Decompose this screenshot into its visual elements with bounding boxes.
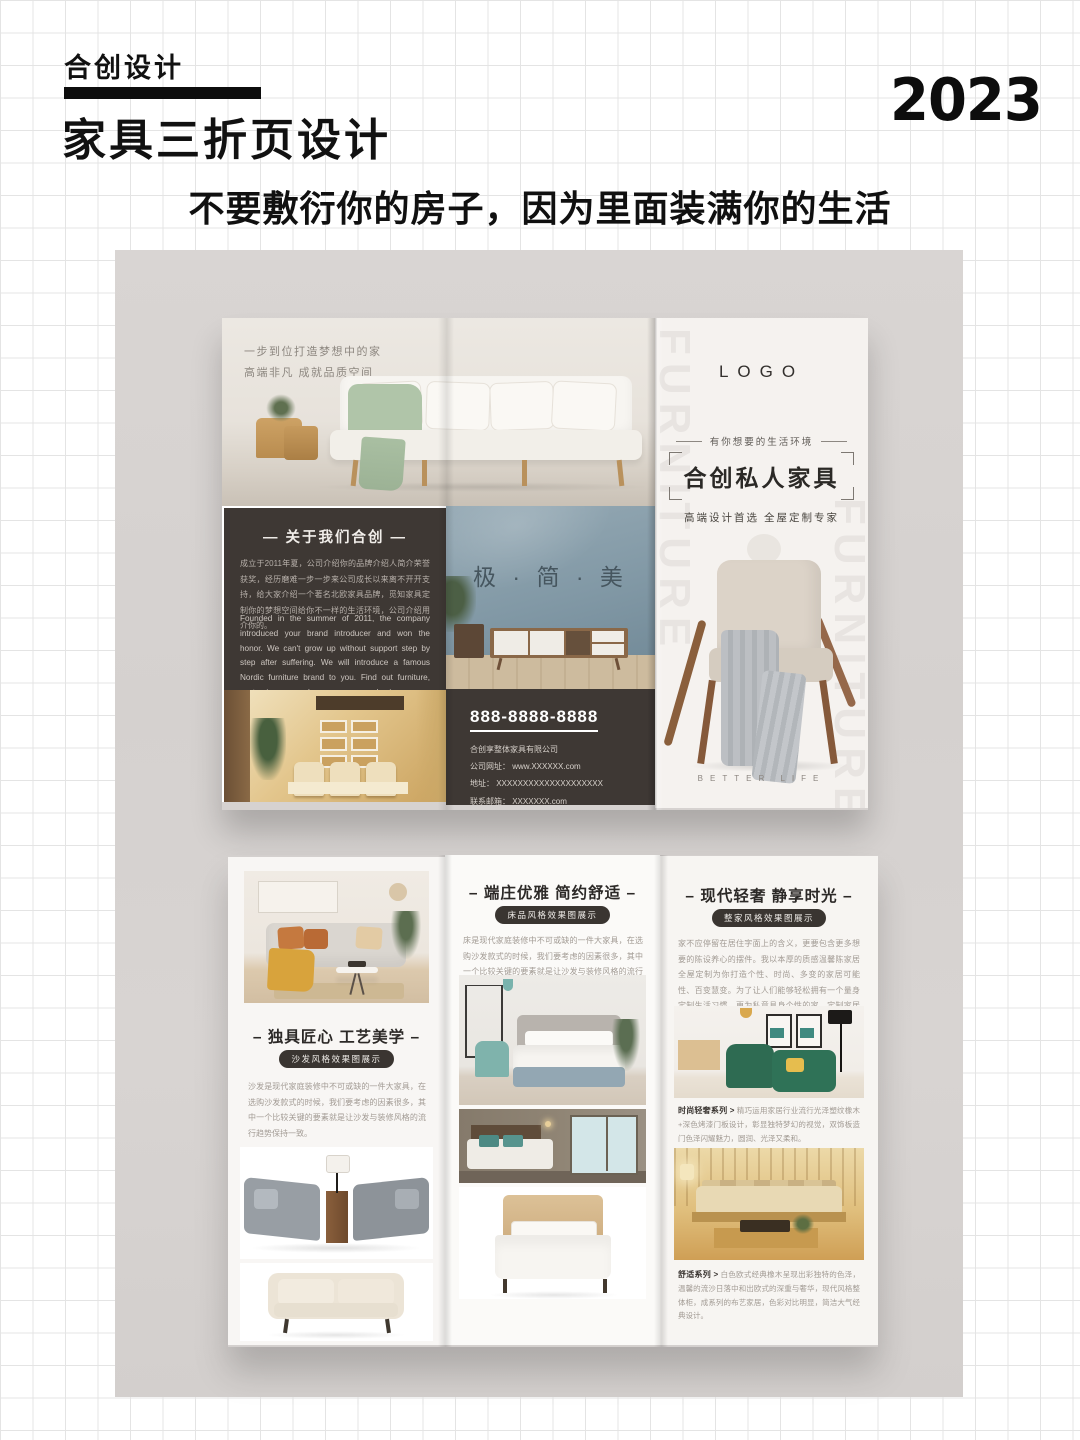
armchair-photo [673, 556, 853, 768]
sofa-pillow [395, 1189, 419, 1209]
round-coffee-table [336, 967, 378, 973]
teal-artwork [770, 1028, 784, 1038]
plant [792, 1214, 814, 1234]
chair-leg [697, 680, 716, 764]
gray-sofas-product-photo [240, 1147, 433, 1259]
better-life-label: BETTER LIFE [655, 774, 868, 783]
warm-lamp [680, 1164, 694, 1180]
right-section-heading: – 现代轻奢 静享时光 – [660, 884, 878, 906]
cabinet-door [530, 631, 564, 655]
company-email: 联系邮箱： XXXXXXX.com [470, 793, 603, 805]
back-left-panel: – 独具匠心 工艺美学 – 沙发风格效果图展示 沙发是现代家庭装修中不可或缺的一… [228, 857, 445, 1345]
dining-wall-panel [316, 696, 404, 710]
mustard-throw [267, 948, 315, 992]
page-title: 家具三折页设计 [62, 104, 391, 168]
cabinet-open-shelf [566, 631, 590, 655]
living-room-photo [244, 871, 429, 1003]
bed-duvet [495, 1235, 611, 1279]
middle-badge-row: 床品风格效果图展示 [445, 906, 660, 924]
teal-pillow [479, 1135, 499, 1147]
wood-floor [446, 655, 655, 689]
minimal-slogan: 极 · 简 · 美 [446, 558, 655, 592]
left-section-badge: 沙发风格效果图展示 [279, 1050, 393, 1068]
series-caption-2-label: 舒适系列 > [678, 1270, 718, 1279]
phone-number: 888-8888-8888 [470, 707, 598, 732]
cover-title: 合创私人家具 [671, 454, 852, 498]
wall-lamp-glow [545, 1121, 551, 1127]
cover-logo: LOGO [655, 362, 868, 382]
loveseat-cushion [278, 1279, 334, 1305]
loveseat-seat [274, 1303, 398, 1317]
product-shadow [250, 1243, 422, 1253]
wood-side-table-small [284, 426, 318, 460]
rust-pillow [277, 926, 304, 950]
minimal-style-photo: 极 · 简 · 美 [446, 506, 655, 689]
brochure-front: — 关于我们合创 — 成立于2011年夏，公司介绍你的品牌介绍人简介荣誉获奖，经… [222, 318, 868, 810]
hero-sofa-photo: 一步到位打造梦想中的家 高端非凡 成就品质空间 [222, 318, 655, 506]
brand-logo-text: 合创设计 [64, 46, 184, 85]
year-label: 2023 [890, 66, 1042, 134]
floor-lamp-shade [828, 1010, 852, 1024]
green-sofa-room-photo [674, 1006, 864, 1098]
back-middle-panel: – 端庄优雅 简约舒适 – 床品风格效果图展示 床是现代家庭装修中不可或缺的一件… [445, 855, 660, 1345]
sofa-leg [422, 460, 427, 486]
table-plant [266, 394, 296, 422]
bed-product-photo [459, 1187, 646, 1299]
middle-section-heading: – 端庄优雅 简约舒适 – [445, 881, 660, 903]
dining-plant [250, 718, 286, 780]
gray-sofa-right [353, 1177, 429, 1241]
sofa-pillow [425, 381, 491, 431]
fold-shadow [654, 855, 668, 1347]
dining-room-photo [224, 690, 446, 802]
plant [391, 911, 421, 959]
plant [612, 1019, 640, 1071]
tv-cabinet [490, 628, 628, 658]
yellow-pillow [786, 1058, 804, 1072]
dark-bedroom-photo [459, 1109, 646, 1183]
green-armchair [726, 1044, 774, 1088]
floor-lamp-stem [840, 1016, 842, 1072]
gray-sofa-left [244, 1177, 320, 1241]
dining-picture-frames [320, 720, 378, 768]
hero-intro-line1: 一步到位打造梦想中的家 [244, 342, 382, 363]
blue-gray-throw [513, 1067, 625, 1087]
dining-wood-column [224, 690, 250, 802]
sofa-pillow [551, 380, 617, 431]
teal-accent-chair [475, 1041, 509, 1077]
series-caption-1-label: 时尚轻奢系列 > [678, 1106, 734, 1115]
cream-pillow [355, 926, 382, 950]
about-heading: — 关于我们合创 — [224, 526, 446, 547]
front-cover-panel: FURNITURE FURNITURE LOGO 有你想要的生活环境 合创私人家… [655, 318, 868, 808]
bedroom-photo [459, 975, 646, 1105]
loveseat-leg [385, 1319, 391, 1333]
green-throw-drape [358, 437, 406, 492]
left-badge-row: 沙发风格效果图展示 [228, 1050, 445, 1068]
cover-title-brackets: 合创私人家具 [671, 454, 852, 498]
chair-leg [819, 680, 838, 764]
company-address: 地址： XXXXXXXXXXXXXXXXXXXX [470, 775, 603, 792]
teal-pillow [503, 1135, 523, 1147]
left-section-heading: – 独具匠心 工艺美学 – [228, 1025, 445, 1047]
back-right-panel: – 现代轻奢 静享时光 – 整家风格效果图展示 家不应停留在居住字面上的含义，更… [660, 856, 878, 1345]
emerald-sofa [772, 1050, 836, 1092]
product-shadow [489, 1291, 619, 1299]
contact-details: 合创享整体家具有限公司 公司网址： www.XXXXXX.com 地址： XXX… [470, 741, 603, 805]
wood-pedestal [326, 1191, 348, 1243]
left-section-body: 沙发是现代家庭装修中不可或缺的一件大家具，在选购沙发款式的时候，我们要考虑的因素… [248, 1079, 426, 1141]
series-caption-2: 舒适系列 > 白色欧式经典橡木呈现出彩独特的色泽，温馨的流沙日落中和出欧式的深重… [678, 1268, 860, 1323]
cabinet-drawer [592, 644, 624, 655]
dining-light-edge [416, 690, 446, 802]
sofa-pillow [489, 381, 555, 431]
brand-underline-bar [64, 87, 261, 99]
bed-leg [603, 1279, 607, 1293]
small-side-cabinet [454, 624, 484, 658]
right-badge-row: 整家风格效果图展示 [660, 909, 878, 927]
table-lamp-shade [326, 1155, 350, 1173]
sofa-leg [522, 460, 527, 486]
cabinet-drawer [592, 631, 624, 642]
page-subtitle: 不要敷衍你的房子，因为里面装满你的生活 [0, 180, 1080, 232]
company-website: 公司网址： www.XXXXXX.com [470, 758, 603, 775]
wall-decor-circle [389, 883, 407, 901]
middle-section-badge: 床品风格效果图展示 [495, 906, 609, 924]
fold-shadow [438, 855, 452, 1347]
brochure-back: – 独具匠心 工艺美学 – 沙发风格效果图展示 沙发是现代家庭装修中不可或缺的一… [228, 855, 878, 1347]
wood-console [678, 1040, 720, 1070]
sofa-pillow [254, 1189, 278, 1209]
about-block: — 关于我们合创 — 成立于2011年夏，公司介绍你的品牌介绍人简介荣誉获奖，经… [224, 508, 446, 690]
loveseat-cushion [338, 1279, 394, 1305]
wall-art-frame [258, 881, 338, 913]
company-name: 合创享整体家具有限公司 [470, 741, 603, 758]
series-caption-1: 时尚轻奢系列 > 精巧运用家居行业流行光泽塑纹橡木+深色烤漆门板设计，彰显独特梦… [678, 1104, 860, 1145]
window [570, 1115, 638, 1175]
right-section-badge: 整家风格效果图展示 [712, 909, 826, 927]
contact-block: 888-8888-8888 合创享整体家具有限公司 公司网址： www.XXXX… [446, 689, 655, 805]
pendant-lamp [503, 979, 513, 991]
bed-leg [503, 1279, 507, 1293]
cabinet-door [494, 631, 528, 655]
mockup-backdrop: — 关于我们合创 — 成立于2011年夏，公司介绍你的品牌介绍人简介荣誉获奖，经… [115, 250, 963, 1397]
cover-subtitle: 高端设计首选 全屋定制专家 [655, 510, 868, 525]
dining-table [288, 782, 408, 794]
warm-wood-room-photo [674, 1148, 864, 1260]
gold-pendant [740, 1008, 752, 1018]
rust-pillow [304, 929, 328, 949]
window-mullion [606, 1115, 608, 1171]
table-tray [348, 961, 366, 967]
teal-artwork [800, 1028, 814, 1038]
table-items [740, 1220, 790, 1232]
beige-loveseat-photo [240, 1263, 433, 1341]
cover-tagline: 有你想要的生活环境 [655, 434, 868, 448]
